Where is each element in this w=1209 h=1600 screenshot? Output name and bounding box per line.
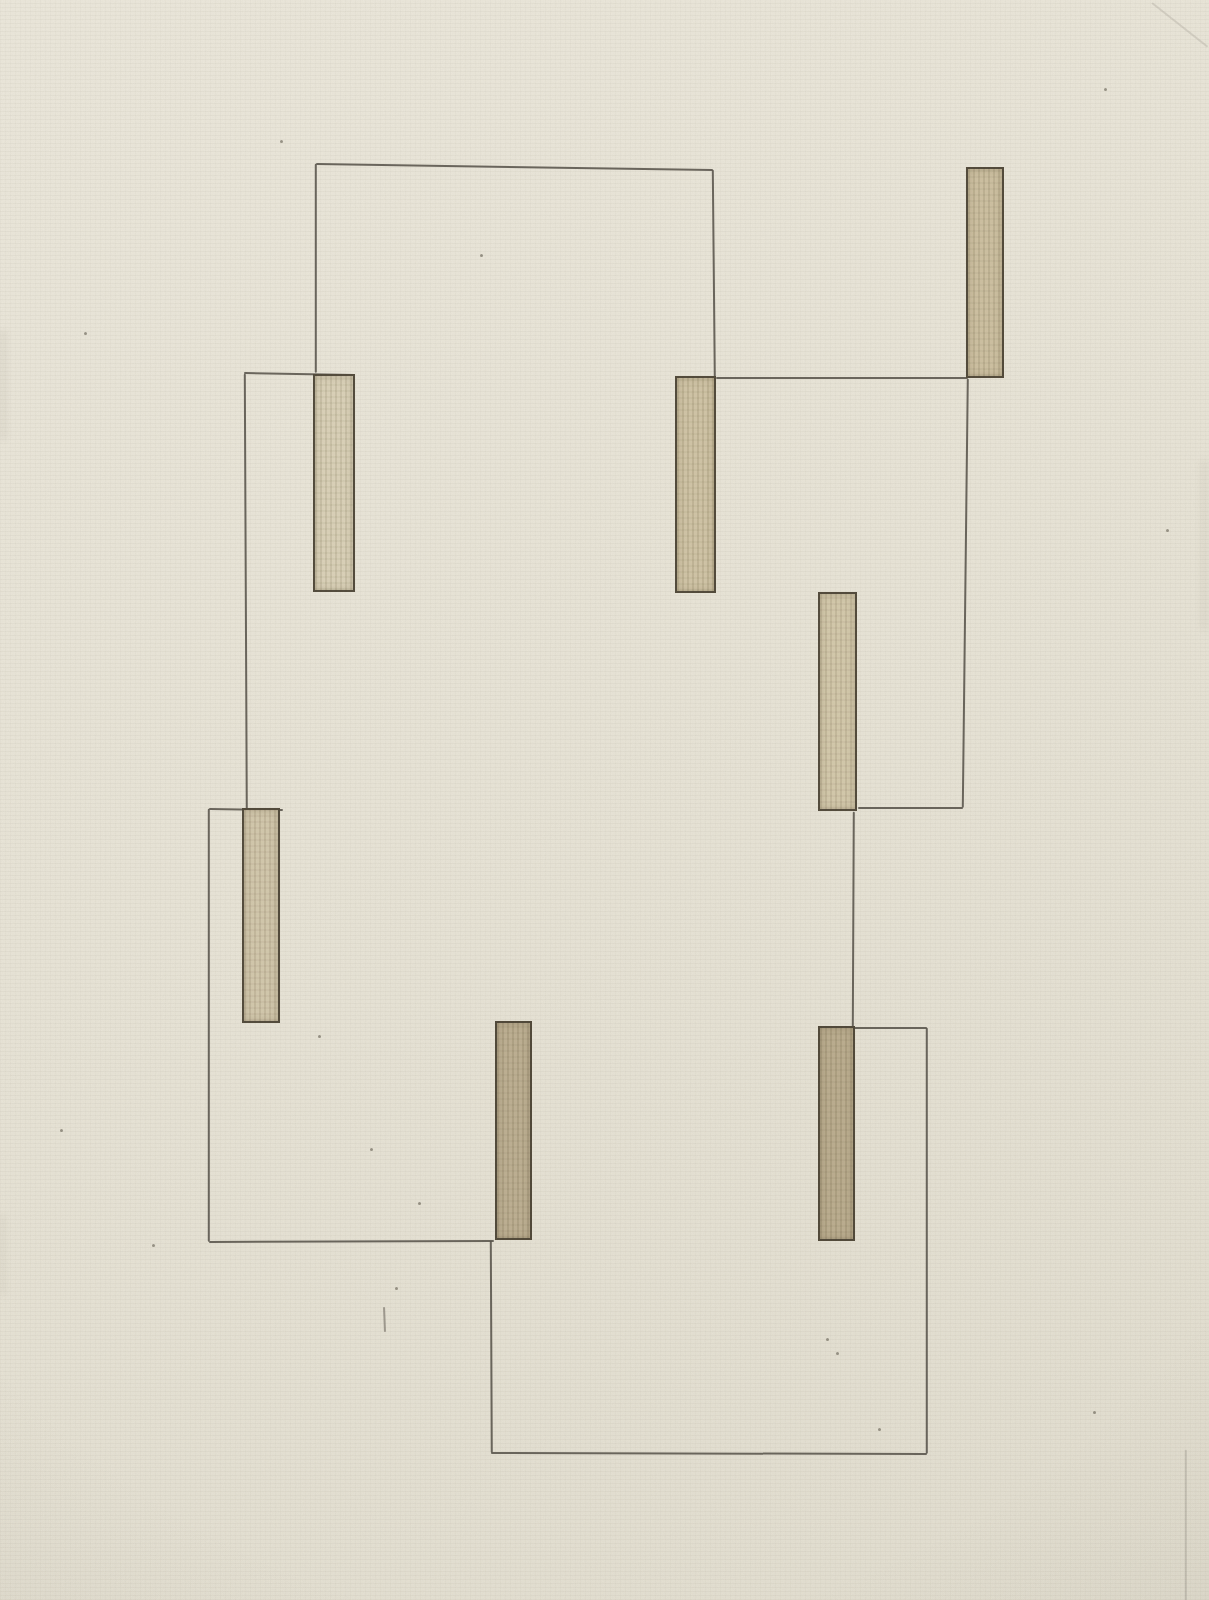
paper-speck-7 (836, 1352, 839, 1355)
drawing-shapes-layer (0, 0, 1209, 1600)
pencil-line-3 (316, 163, 713, 171)
paper-speck-4 (370, 1148, 373, 1151)
pencil-line-2 (315, 164, 317, 373)
edge-smudge-2 (0, 1215, 6, 1295)
edge-smudge-1 (0, 330, 7, 440)
shaded-bar-6 (818, 1026, 855, 1241)
shaded-bar-4 (966, 167, 1004, 378)
pencil-line-15 (926, 1028, 928, 1454)
paper-speck-3 (318, 1035, 321, 1038)
paper-speck-8 (878, 1428, 881, 1431)
pencil-line-6 (962, 379, 969, 808)
shaded-bar-7 (495, 1021, 532, 1240)
paper-speck-12 (1166, 529, 1169, 532)
paper-speck-11 (84, 332, 87, 335)
shaded-bar-1 (313, 374, 355, 592)
shaded-bar-2 (675, 376, 716, 593)
pencil-line-4 (712, 170, 716, 377)
artwork-canvas (0, 0, 1209, 1600)
edge-smudge-3 (1200, 460, 1209, 630)
paper-speck-13 (152, 1244, 155, 1247)
pencil-line-12 (209, 1240, 494, 1243)
pencil-line-5 (716, 377, 968, 379)
shaded-bar-3 (242, 808, 280, 1023)
pencil-line-11 (208, 809, 210, 1242)
paper-speck-1 (280, 140, 283, 143)
pencil-line-9 (244, 374, 248, 811)
shaded-bar-5 (818, 592, 857, 811)
paper-speck-5 (418, 1202, 421, 1205)
pencil-line-19 (1185, 1450, 1187, 1600)
paper-speck-9 (1093, 1411, 1096, 1414)
paper-speck-6 (826, 1338, 829, 1341)
pencil-line-7 (858, 807, 963, 809)
pencil-line-17 (383, 1307, 386, 1332)
paper-speck-10 (395, 1287, 398, 1290)
pencil-line-13 (490, 1241, 493, 1453)
pencil-line-14 (491, 1452, 927, 1455)
paper-speck-15 (60, 1129, 63, 1132)
pencil-line-8 (852, 812, 855, 1027)
paper-speck-2 (480, 254, 483, 257)
pencil-line-18 (1152, 2, 1209, 47)
paper-speck-14 (1104, 88, 1107, 91)
